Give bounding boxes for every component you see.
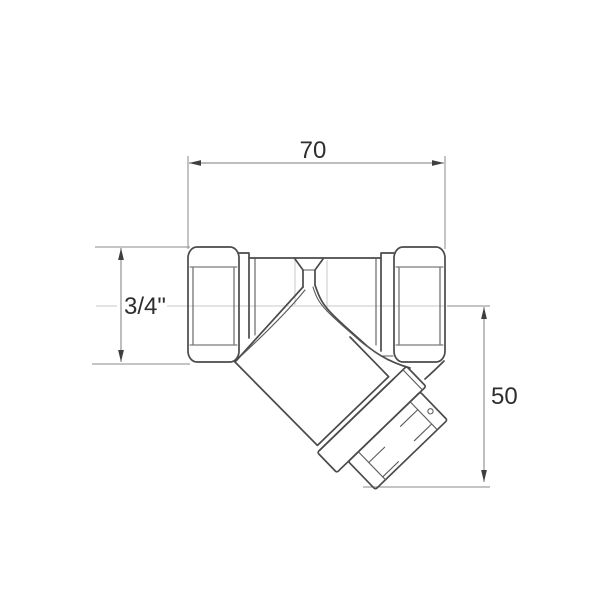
y-strainer-technical-drawing: 70 3/4" 50 (0, 0, 600, 600)
dimension-width: 70 (188, 137, 445, 249)
dim-arrow-left-icon (189, 160, 201, 166)
cap-plug-detail (427, 408, 434, 415)
collar-right (376, 253, 394, 356)
dim-arrow-up-icon (481, 307, 487, 319)
branch-right-fairing-outer-curve (315, 285, 410, 368)
funnel-left-line (295, 259, 303, 270)
dim-arrow-right-icon (432, 160, 444, 166)
dim-arrow-down-icon (118, 350, 124, 362)
branch-under-nut-curve (425, 361, 444, 379)
cap-cross-line-3 (369, 447, 385, 462)
branch-lower-left-edge (235, 362, 317, 445)
cap-cross-line-1 (401, 410, 418, 427)
dim-arrow-down-icon (481, 470, 487, 482)
funnel-right-line (315, 259, 323, 270)
cap-body-outline (348, 392, 447, 490)
collar-left (239, 253, 255, 338)
pipe-body (249, 258, 381, 287)
valve-body (188, 247, 453, 501)
dim-arrow-up-icon (118, 248, 124, 260)
cap-lip-line-1 (317, 377, 388, 446)
hex-nut-left (188, 247, 239, 362)
branch-right-fairing-inner-curve (313, 287, 388, 360)
technical-drawing-page: 70 3/4" 50 (0, 0, 600, 600)
dimension-height-label: 50 (491, 383, 518, 410)
branch-upper-left-edge (235, 287, 303, 362)
strainer-branch (235, 285, 444, 445)
collar-left-outline (239, 253, 249, 338)
dimension-width-label: 70 (300, 137, 327, 164)
dimension-thread-label: 3/4" (124, 293, 166, 320)
hex-nut-right (394, 247, 445, 362)
strainer-cap (314, 363, 453, 501)
collar-right-outline (381, 253, 394, 351)
